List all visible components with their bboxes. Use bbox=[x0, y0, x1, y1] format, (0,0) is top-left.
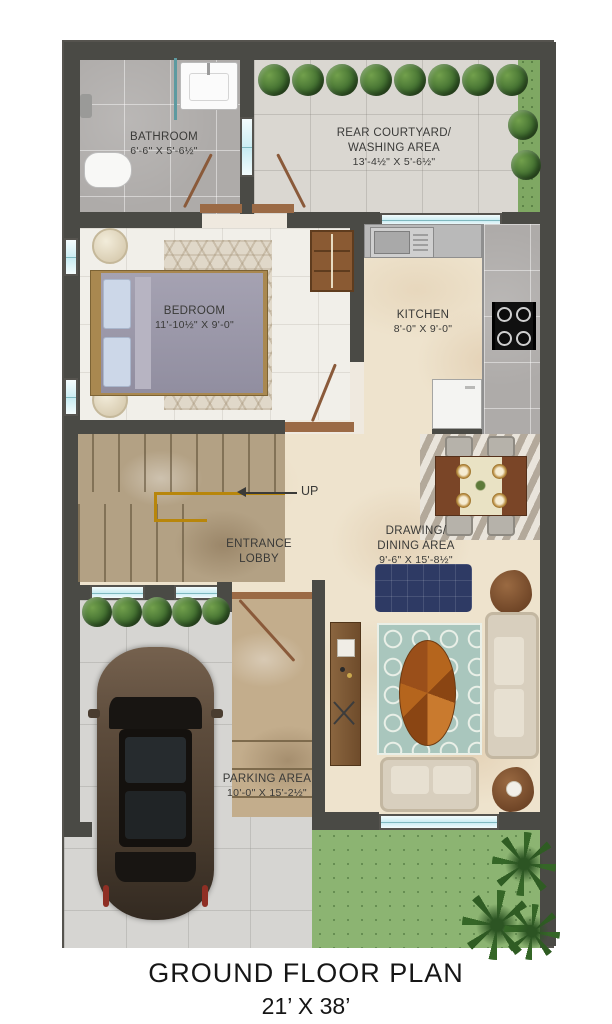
door-sill bbox=[200, 204, 242, 213]
palm-plant bbox=[504, 904, 560, 960]
door-sill bbox=[252, 204, 294, 213]
plate bbox=[492, 493, 507, 508]
front-window bbox=[379, 814, 499, 830]
stair-railing bbox=[154, 519, 207, 522]
pillow bbox=[103, 337, 131, 387]
dining-table bbox=[435, 456, 527, 516]
room-name: REAR COURTYARD/ bbox=[299, 126, 489, 141]
room-name: WASHING AREA bbox=[299, 141, 489, 156]
floor-plan: UP bbox=[62, 40, 554, 948]
up-label: UP bbox=[301, 484, 318, 498]
shower-glass-panel bbox=[174, 58, 177, 120]
room-name: LOBBY bbox=[199, 552, 319, 567]
dining-chair bbox=[487, 514, 515, 536]
room-name: KITCHEN bbox=[364, 308, 482, 323]
open-wardrobe bbox=[310, 230, 354, 292]
bathroom-label: BATHROOM 6'-6" X 5'-6½" bbox=[94, 130, 234, 159]
plan-title-line1: GROUND FLOOR PLAN bbox=[0, 958, 612, 989]
shrub bbox=[508, 110, 538, 140]
car-windshield bbox=[109, 697, 202, 729]
blue-bench bbox=[375, 564, 472, 612]
car-rear-window bbox=[115, 852, 196, 882]
outer-wall-right bbox=[540, 42, 556, 946]
room-name: ENTRANCE bbox=[199, 537, 319, 552]
room-name: BEDROOM bbox=[112, 304, 277, 319]
side-table bbox=[490, 570, 532, 614]
room-name: PARKING AREA bbox=[194, 772, 340, 787]
drawing-dining-label: DRAWING/ DINING AREA 9'-6" X 15'-8½" bbox=[354, 524, 478, 568]
shrub bbox=[360, 64, 392, 96]
room-name: DRAWING/ bbox=[354, 524, 478, 539]
loveseat-sofa bbox=[380, 757, 479, 812]
console-table bbox=[330, 622, 361, 766]
shrub bbox=[82, 597, 112, 627]
room-dim: 8'-0" X 9'-0" bbox=[364, 323, 482, 337]
car-mirror bbox=[88, 709, 100, 718]
shrub bbox=[142, 597, 172, 627]
side-table bbox=[492, 767, 534, 812]
room-dim: 9'-6" X 15'-8½" bbox=[354, 554, 478, 568]
plate bbox=[492, 464, 507, 479]
bathroom-sink bbox=[180, 62, 238, 110]
wall-segment bbox=[64, 212, 202, 228]
plate bbox=[456, 464, 471, 479]
car-taillight bbox=[103, 885, 109, 907]
dining-chair bbox=[487, 436, 515, 458]
bed bbox=[90, 270, 268, 396]
outer-wall-top bbox=[64, 42, 556, 60]
shrub bbox=[511, 150, 541, 180]
wall-segment bbox=[64, 420, 285, 434]
shrub bbox=[394, 64, 426, 96]
stove-hob bbox=[492, 302, 536, 350]
wall-segment bbox=[499, 812, 540, 830]
shrub bbox=[462, 64, 494, 96]
car-mirror bbox=[211, 709, 223, 718]
window bbox=[64, 378, 78, 416]
shrub bbox=[112, 597, 142, 627]
room-dim: 13'-4½" X 5'-6½" bbox=[299, 156, 489, 170]
door-sill bbox=[285, 422, 354, 432]
shrub bbox=[292, 64, 324, 96]
plan-title-line2: 21’ X 38’ bbox=[0, 993, 612, 1020]
plate bbox=[456, 493, 471, 508]
shrub bbox=[326, 64, 358, 96]
kitchen-label: KITCHEN 8'-0" X 9'-0" bbox=[364, 308, 482, 337]
room-name: DINING AREA bbox=[354, 539, 478, 554]
plan-title: GROUND FLOOR PLAN 21’ X 38’ bbox=[0, 958, 612, 1020]
stair-steps-upper bbox=[92, 434, 285, 492]
room-dim: 6'-6" X 5'-6½" bbox=[94, 145, 234, 159]
stair-steps-lower bbox=[78, 504, 207, 582]
main-door-sill bbox=[232, 592, 312, 599]
kitchen-sink bbox=[370, 227, 434, 258]
bedroom-label: BEDROOM 11'-10½" X 9'-0" bbox=[112, 304, 277, 333]
shrub bbox=[428, 64, 460, 96]
lobby-label: ENTRANCE LOBBY bbox=[199, 537, 319, 567]
coffee-table bbox=[399, 640, 456, 746]
window bbox=[64, 238, 78, 276]
pouf bbox=[92, 228, 128, 264]
shrub bbox=[258, 64, 290, 96]
center-dish bbox=[474, 479, 487, 492]
wall-segment bbox=[64, 822, 92, 837]
sectional-sofa bbox=[485, 612, 539, 759]
palm-plant bbox=[492, 832, 556, 896]
room-name: BATHROOM bbox=[94, 130, 234, 145]
stair-railing bbox=[154, 492, 157, 519]
parking-label: PARKING AREA 10'-0" X 15'-2½" bbox=[194, 772, 340, 801]
dining-chair bbox=[445, 436, 473, 458]
shrub bbox=[496, 64, 528, 96]
wall-segment bbox=[312, 812, 379, 830]
window bbox=[240, 117, 254, 177]
refrigerator bbox=[432, 379, 482, 429]
room-dim: 11'-10½" X 9'-0" bbox=[112, 319, 277, 333]
up-arrow: UP bbox=[237, 486, 329, 500]
shower-icon bbox=[80, 94, 92, 118]
wall-segment bbox=[240, 58, 254, 117]
shrub bbox=[172, 597, 202, 627]
room-dim: 10'-0" X 15'-2½" bbox=[194, 787, 340, 801]
courtyard-label: REAR COURTYARD/ WASHING AREA 13'-4½" X 5… bbox=[299, 126, 489, 170]
car-roof bbox=[119, 729, 192, 847]
shrub bbox=[202, 597, 230, 625]
car-taillight bbox=[202, 885, 208, 907]
